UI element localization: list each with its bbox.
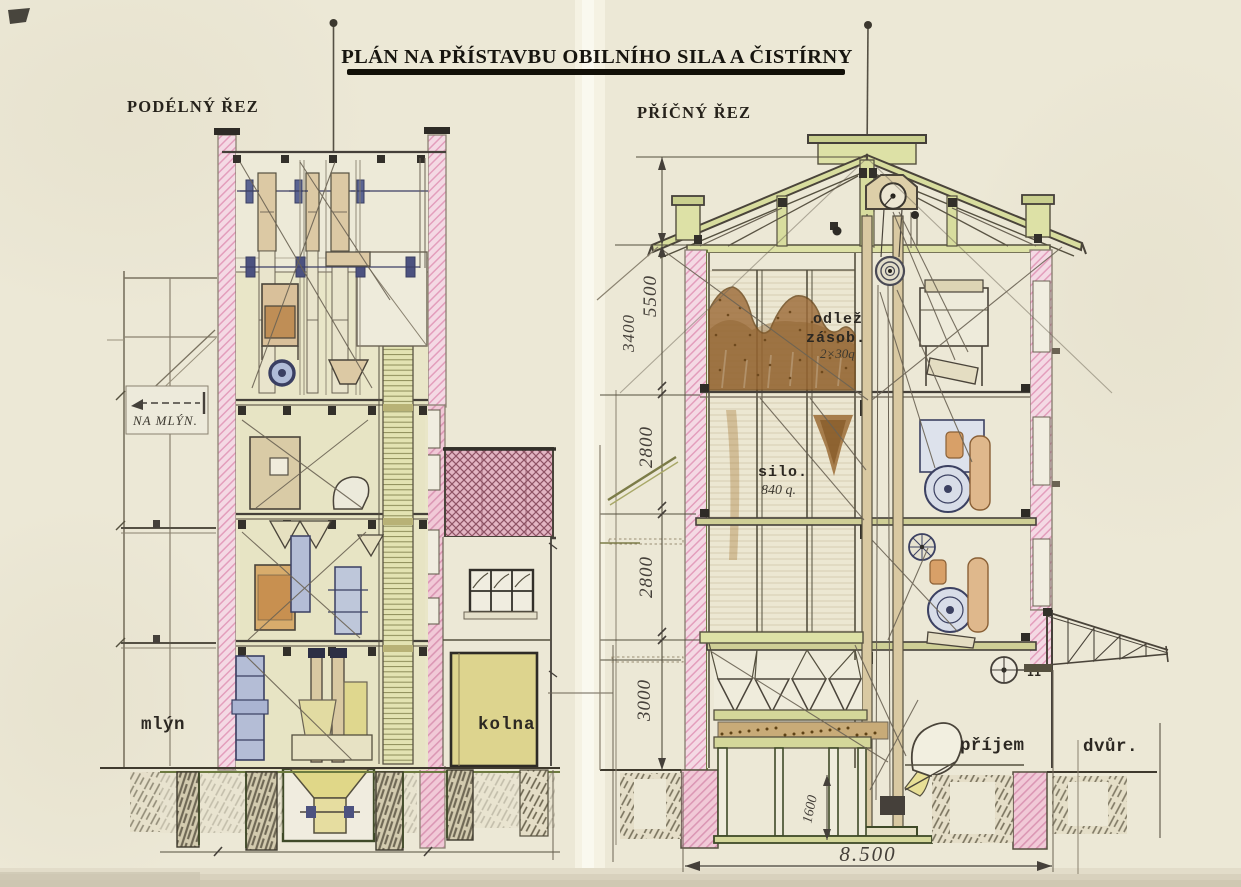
svg-text:8.500: 8.500: [839, 842, 896, 866]
svg-text:2800: 2800: [636, 556, 657, 598]
svg-text:PŘÍČNÝ ŘEZ: PŘÍČNÝ ŘEZ: [637, 103, 751, 122]
svg-text:2×30q: 2×30q: [820, 346, 855, 361]
svg-text:mlýn: mlýn: [141, 715, 185, 735]
svg-text:silo.: silo.: [758, 464, 808, 481]
svg-text:dvůr.: dvůr.: [1083, 737, 1138, 757]
svg-text:3000: 3000: [634, 679, 655, 722]
svg-text:NA MLÝN.: NA MLÝN.: [132, 413, 198, 428]
svg-text:840 q.: 840 q.: [761, 483, 796, 498]
svg-text:příjem: příjem: [960, 736, 1024, 756]
svg-text:zásob.: zásob.: [806, 330, 866, 347]
svg-text:2800: 2800: [636, 426, 657, 468]
svg-text:5500: 5500: [640, 275, 661, 317]
svg-text:kolna: kolna: [478, 715, 536, 735]
svg-text:PODÉLNÝ ŘEZ: PODÉLNÝ ŘEZ: [127, 97, 259, 116]
svg-text:3400: 3400: [619, 314, 638, 353]
svg-text:PLÁN NA PŘÍSTAVBU OBILNÍHO SIL: PLÁN NA PŘÍSTAVBU OBILNÍHO SILA A ČISTÍR…: [341, 44, 853, 68]
